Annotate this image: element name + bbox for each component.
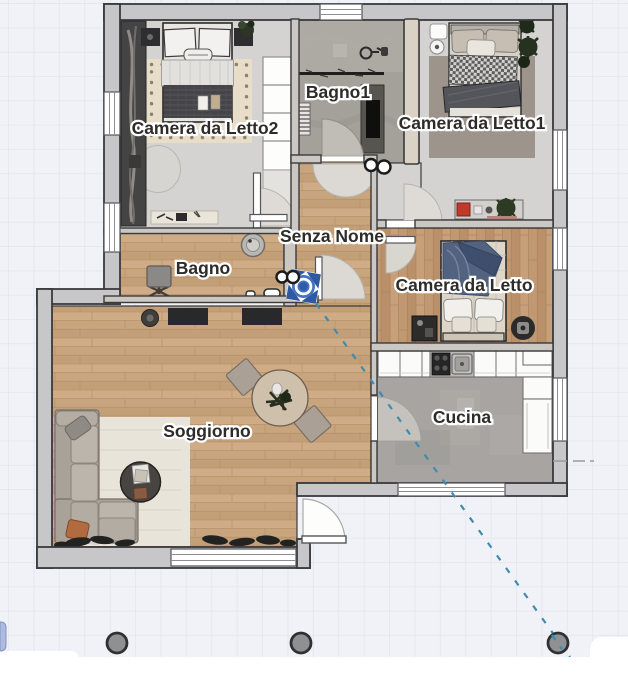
svg-text:Camera da Letto1: Camera da Letto1 xyxy=(399,113,546,133)
svg-text:Camera da Letto2: Camera da Letto2 xyxy=(132,118,279,138)
svg-text:Camera da Letto: Camera da Letto xyxy=(395,275,532,295)
svg-text:Cucina: Cucina xyxy=(433,407,492,427)
svg-text:Senza Nome: Senza Nome xyxy=(280,226,384,246)
svg-text:Soggiorno: Soggiorno xyxy=(163,421,250,441)
svg-text:Bagno1: Bagno1 xyxy=(306,82,370,102)
svg-text:Bagno: Bagno xyxy=(176,258,230,278)
